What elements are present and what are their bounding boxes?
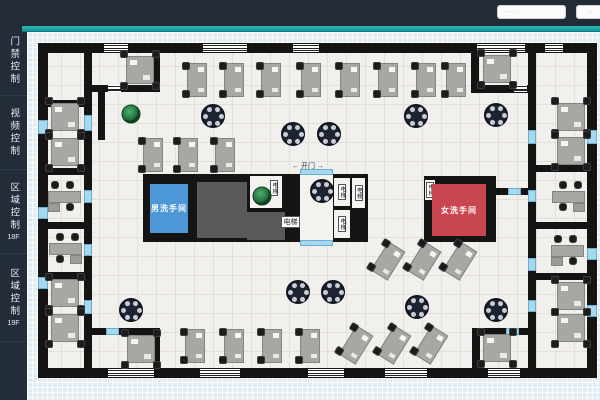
chair [77, 340, 85, 348]
chair [583, 276, 591, 284]
chair [120, 82, 128, 90]
room-label: 男洗手间 [151, 203, 187, 214]
window [545, 44, 563, 52]
search-input[interactable]: · · · · · [497, 5, 566, 19]
workstation-desk [340, 63, 360, 97]
round-table [404, 104, 428, 128]
door-marker[interactable] [587, 248, 597, 260]
chair [45, 97, 53, 105]
sidebar-item-video-control[interactable]: 视频控制 [0, 96, 27, 170]
sidebar-item-area-control-19f[interactable]: 区域控制 19F [0, 254, 27, 342]
round-table [281, 122, 305, 146]
sidebar: 门禁控制 视频控制 区域控制 18F 区域控制 19F [0, 26, 27, 400]
chair [509, 81, 517, 89]
door-marker[interactable] [84, 244, 92, 256]
elevator-label: 电梯 [281, 216, 300, 228]
chair [509, 360, 517, 368]
workstation-desk [224, 63, 244, 97]
chair [256, 90, 264, 98]
window [385, 369, 427, 377]
desk-with-four-chairs [119, 49, 161, 91]
chair [77, 164, 85, 172]
chair [551, 276, 559, 284]
sidebar-item-area-control-18f[interactable]: 区域控制 18F [0, 170, 27, 254]
topbar-action-button[interactable]: · · [576, 5, 600, 19]
topbar: · · · · · · · [0, 0, 600, 26]
chair [551, 131, 559, 139]
workstation-desk [446, 63, 466, 97]
workstation-desk [185, 329, 205, 363]
chair [551, 97, 559, 105]
door-marker[interactable] [508, 188, 521, 195]
executive-desk [46, 180, 84, 212]
plant [253, 187, 272, 206]
accent-strip [22, 26, 600, 32]
chair [441, 62, 449, 70]
chair [45, 132, 53, 140]
round-table [310, 179, 334, 203]
chair [477, 81, 485, 89]
chair [411, 62, 419, 70]
round-table [201, 104, 225, 128]
round-table [321, 280, 345, 304]
workstation-desk [178, 138, 198, 172]
floor-plan[interactable]: 电梯电梯电梯电梯电梯男洗手间女洗手间← 开门 →电梯 [0, 0, 600, 400]
chair [257, 356, 265, 364]
elevator-core-block [197, 182, 247, 238]
door-marker[interactable] [84, 190, 92, 203]
door-marker[interactable] [528, 130, 536, 144]
desk-with-four-chairs [120, 328, 162, 370]
desk-with-four-chairs [44, 307, 86, 349]
wall [98, 92, 105, 140]
wall [536, 222, 587, 229]
chair [210, 137, 218, 145]
round-table [317, 122, 341, 146]
chair [77, 97, 85, 105]
door-marker[interactable] [528, 258, 536, 271]
workstation-desk [187, 63, 207, 97]
window [203, 44, 247, 52]
chair [296, 62, 304, 70]
chair [182, 90, 190, 98]
sidebar-item-label: 视频控制 [9, 108, 19, 158]
round-table [405, 295, 429, 319]
round-table [484, 298, 508, 322]
chair [180, 328, 188, 336]
workstation-desk [261, 63, 281, 97]
window [488, 369, 520, 377]
app-window: · · · · · · · 门禁控制 视频控制 区域控制 18F 区域控制 19… [0, 0, 600, 400]
chair [335, 62, 343, 70]
door-marker[interactable] [300, 240, 333, 246]
executive-desk [549, 234, 587, 266]
chair [210, 165, 218, 173]
sidebar-item-label: 区域控制 [9, 268, 19, 318]
chair [583, 340, 591, 348]
chair [77, 132, 85, 140]
sidebar-item-label: 区域控制 [9, 182, 19, 232]
workstation-desk [224, 329, 244, 363]
chair [153, 329, 161, 337]
shaft-label: 电梯 [338, 184, 346, 200]
chair [296, 90, 304, 98]
shaft-label: 电梯 [355, 185, 363, 201]
desk-with-four-chairs [476, 48, 518, 90]
mens-restroom[interactable]: 男洗手间 [150, 184, 188, 233]
sidebar-item-sublabel: 18F [7, 234, 19, 241]
chair [153, 361, 161, 369]
round-table [119, 298, 143, 322]
round-table [286, 280, 310, 304]
chair [335, 90, 343, 98]
chair [45, 340, 53, 348]
chair [509, 49, 517, 57]
desk-with-four-chairs [550, 307, 592, 349]
chair [441, 90, 449, 98]
chair [152, 82, 160, 90]
workstation-desk [416, 63, 436, 97]
door-marker[interactable] [528, 190, 536, 202]
desk-with-four-chairs [550, 130, 592, 172]
chair [45, 164, 53, 172]
chair [173, 165, 181, 173]
chair [551, 163, 559, 171]
door-marker[interactable] [528, 300, 536, 312]
chair [138, 165, 146, 173]
chair [583, 308, 591, 316]
chair [477, 328, 485, 336]
window [200, 369, 240, 377]
chair [121, 329, 129, 337]
chair [257, 328, 265, 336]
chair [219, 328, 227, 336]
chair [219, 90, 227, 98]
workstation-desk [215, 138, 235, 172]
elevator-core-block [247, 212, 285, 240]
chair [583, 131, 591, 139]
workstation-desk [378, 63, 398, 97]
room-label: 女洗手间 [441, 205, 477, 216]
plant [122, 105, 141, 124]
window [293, 44, 319, 52]
workstation-desk [301, 63, 321, 97]
wall [48, 222, 84, 229]
workstation-desk [300, 329, 320, 363]
door-open-control[interactable]: ← 开门 → [292, 161, 324, 171]
window [308, 369, 344, 377]
sidebar-item-sublabel: 19F [7, 320, 19, 327]
chair [583, 163, 591, 171]
chair [121, 361, 129, 369]
chair [295, 328, 303, 336]
window [108, 369, 154, 377]
chair [45, 308, 53, 316]
chair [295, 356, 303, 364]
desk-with-four-chairs [476, 327, 518, 369]
executive-desk [46, 232, 84, 264]
sidebar-item-label: 门禁控制 [9, 36, 19, 86]
executive-desk [549, 180, 587, 212]
workstation-desk [262, 329, 282, 363]
wall [528, 53, 536, 368]
workstation-desk [143, 138, 163, 172]
chair [77, 273, 85, 281]
chair [182, 62, 190, 70]
chair [551, 308, 559, 316]
chair [138, 137, 146, 145]
shaft-room: 电梯 [352, 178, 365, 208]
shaft-room: 电梯 [334, 178, 350, 206]
chair [219, 62, 227, 70]
door-marker[interactable] [106, 328, 119, 335]
chair [477, 360, 485, 368]
chair [77, 308, 85, 316]
chair [180, 356, 188, 364]
chair [45, 273, 53, 281]
chair [373, 90, 381, 98]
chair [219, 356, 227, 364]
womens-restroom[interactable]: 女洗手间 [432, 184, 486, 236]
chair [551, 340, 559, 348]
chair [583, 97, 591, 105]
shaft-room: 电梯 [334, 210, 350, 238]
chair [173, 137, 181, 145]
desk-with-four-chairs [44, 131, 86, 173]
chair [411, 90, 419, 98]
chair [120, 50, 128, 58]
chair [373, 62, 381, 70]
shaft-label: 电梯 [338, 216, 346, 232]
round-table [484, 103, 508, 127]
chair [152, 50, 160, 58]
chair [509, 328, 517, 336]
chair [256, 62, 264, 70]
chair [477, 49, 485, 57]
sidebar-item-access-control[interactable]: 门禁控制 [0, 26, 27, 96]
